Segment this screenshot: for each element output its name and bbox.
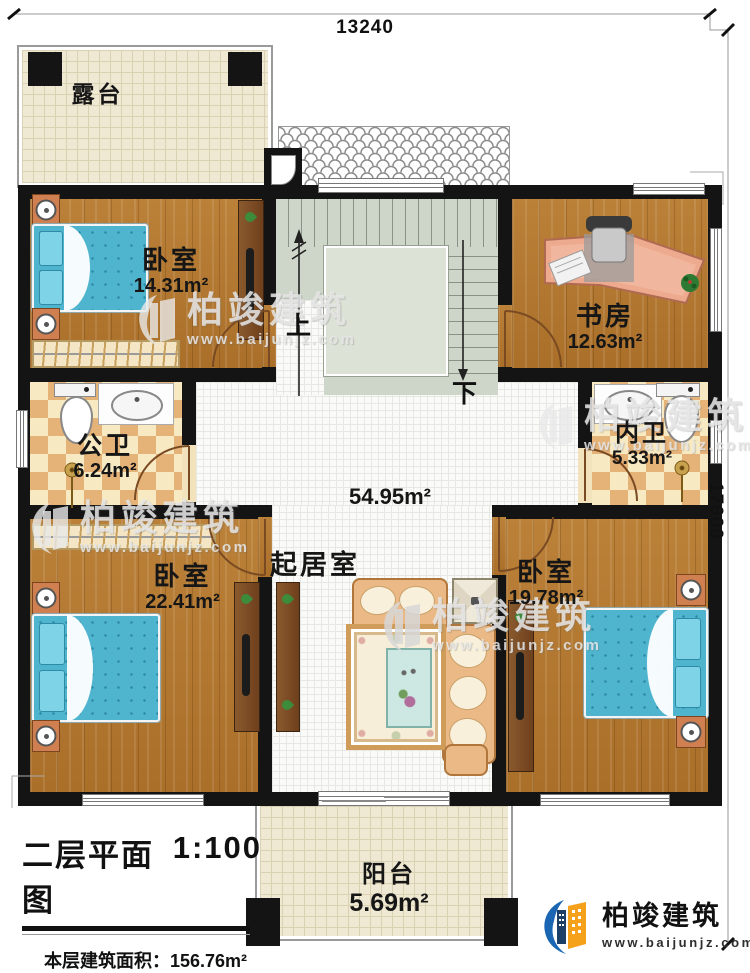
nightstand: [32, 582, 60, 614]
window: [633, 183, 705, 195]
room-label-study: 书房 12.63m²: [540, 302, 670, 354]
roof-tiles: [278, 126, 510, 186]
pillow: [39, 231, 63, 266]
window: [318, 178, 444, 193]
room-area: 14.31m²: [105, 275, 237, 297]
sink: [111, 390, 163, 421]
pillow: [39, 670, 65, 712]
pillow: [39, 623, 65, 665]
room-label-balcony: 阳台 5.69m²: [315, 862, 463, 917]
door-opening: [182, 445, 196, 502]
living-room-name: 起居室: [245, 550, 385, 580]
room-label-bedroom-top-left: 卧室 14.31m²: [105, 246, 237, 298]
room-name: 内卫: [578, 421, 706, 448]
tv: [516, 652, 524, 720]
tv: [242, 634, 250, 696]
sink-counter: [98, 383, 174, 425]
room-name: 公卫: [40, 432, 170, 460]
living-room-area: 54.95m²: [330, 485, 450, 510]
lamp-icon: [36, 588, 57, 609]
toilet-tank: [54, 383, 96, 397]
room-name: 阳台: [315, 862, 463, 889]
stair-up-label: 上: [286, 306, 311, 342]
room-area: 5.69m²: [315, 889, 463, 917]
room-area: 5.33m²: [578, 448, 706, 469]
room-name: 露台: [40, 82, 155, 108]
window: [16, 410, 28, 468]
nightstand: [32, 194, 60, 226]
door-opening: [262, 305, 276, 367]
room-area: 12.63m²: [540, 331, 670, 353]
door-opening: [498, 305, 512, 367]
double-bed: [584, 608, 708, 718]
room-name: 卧室: [480, 558, 612, 587]
sofa-cushion: [446, 673, 489, 713]
balcony-sliding-door: [318, 791, 450, 806]
floor-area-value: 156.76m²: [170, 951, 247, 971]
pillow: [39, 270, 63, 305]
ottoman: [444, 744, 488, 776]
blanket-fold: [67, 615, 93, 721]
blanket-fold: [64, 225, 90, 311]
pillow: [675, 666, 701, 708]
lamp-icon: [36, 726, 57, 747]
nightstand: [32, 308, 60, 340]
lamp-icon: [681, 722, 702, 743]
room-area: 6.24m²: [40, 460, 170, 482]
room-label-bedroom-bottom-right: 卧室 19.78m²: [480, 558, 612, 610]
dimension-width: 13240: [325, 17, 405, 39]
room-area: 19.78m²: [480, 587, 612, 609]
stair-landing: [324, 246, 448, 376]
title-underline-thin: [22, 934, 250, 935]
dimension-tick: [722, 24, 734, 36]
brand-logo: 柏竣建筑 www.baijunjz.com: [540, 896, 750, 956]
brand-logo-icon: [540, 896, 592, 956]
drawing-scale: 1:100: [173, 830, 262, 920]
double-bed: [32, 614, 160, 722]
floor-plan-canvas: 柏竣建筑 www.baijunjz.com 柏竣建筑 www.baijunjz.…: [0, 0, 750, 973]
nightstand: [676, 716, 706, 748]
terrace-column-right: [228, 52, 262, 86]
room-name: 书房: [540, 302, 670, 331]
sink: [604, 390, 655, 421]
room-label-terrace: 露台: [40, 82, 155, 108]
floor-area-label: 本层建筑面积：: [44, 951, 170, 971]
stair-treads-top: [288, 199, 498, 247]
brand-name: 柏竣建筑: [602, 902, 750, 930]
sofa-cushion: [445, 630, 490, 672]
dimension-tick: [704, 9, 716, 19]
room-label-ensuite-bath: 内卫 5.33m²: [578, 421, 706, 469]
sofa-chaise: [442, 624, 496, 764]
room-name: 卧室: [105, 246, 237, 275]
sofa-cushion: [358, 584, 398, 618]
brand-site: www.baijunjz.com: [602, 935, 750, 950]
coffee-table: [386, 648, 432, 728]
lamp-icon: [681, 580, 702, 601]
room-name: 卧室: [115, 562, 250, 591]
dimension-tick: [8, 9, 20, 19]
window: [82, 794, 204, 806]
blanket-fold: [647, 609, 673, 717]
title-underline: [22, 926, 250, 931]
nightstand: [32, 720, 60, 752]
pillow: [675, 618, 701, 660]
balcony-column-right: [484, 898, 518, 946]
wardrobe: [32, 340, 180, 368]
drawing-title: 二层平面图: [22, 830, 157, 920]
dimension-height: 17600: [704, 479, 726, 543]
lamp-icon: [36, 200, 57, 221]
nightstand: [676, 574, 706, 606]
tv: [246, 248, 254, 312]
window: [710, 228, 722, 332]
floor-area-row: 本层建筑面积：156.76m²: [44, 947, 262, 973]
room-label-bedroom-bottom-left: 卧室 22.41m²: [115, 562, 250, 614]
sofa-cushion: [398, 584, 437, 617]
stair-down-label: 下: [452, 374, 477, 410]
room-area: 22.41m²: [115, 591, 250, 613]
wardrobe: [32, 524, 216, 550]
title-block: 二层平面图 1:100 本层建筑面积：156.76m² 层高: 3.3m: [22, 830, 262, 973]
terrace-column-left: [28, 52, 62, 86]
drawing-title-row: 二层平面图 1:100: [22, 830, 262, 920]
window: [710, 420, 722, 464]
stair-treads-right: [448, 246, 498, 374]
lamp-icon: [36, 314, 57, 335]
sink-counter: [594, 384, 662, 424]
room-label-public-bath: 公卫 6.24m²: [40, 432, 170, 482]
window: [540, 794, 670, 806]
